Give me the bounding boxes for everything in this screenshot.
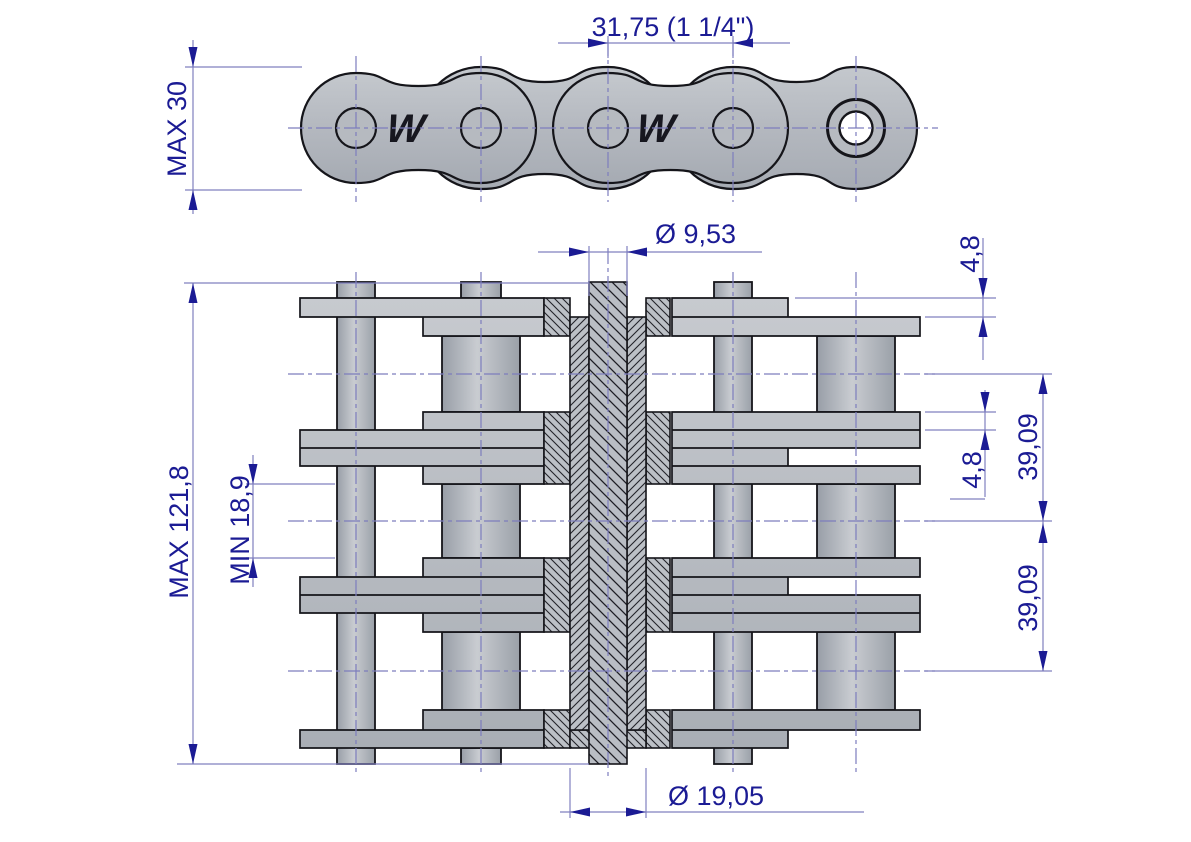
sectioned-parts [544, 282, 670, 764]
dim-inner-width-label: MIN 18,9 [225, 475, 255, 585]
dim-plate-thickness-inner-label: 4,8 [957, 451, 987, 489]
dim-roller-diameter: Ø 19,05 [560, 768, 864, 818]
arrowhead [570, 808, 590, 817]
sectioned-plate-block [544, 710, 570, 748]
arrowhead [1039, 501, 1048, 521]
arrowhead [1039, 651, 1048, 671]
chain-section-view [300, 282, 920, 764]
sectioned-plate-block [544, 412, 570, 484]
arrowhead [979, 278, 988, 298]
arrowhead [626, 808, 646, 817]
arrowhead [1039, 374, 1048, 394]
sectioned-plate-block [646, 558, 670, 632]
arrowhead [1039, 523, 1048, 543]
dim-pitch: 31,75 (1 1/4") [558, 12, 790, 58]
roller-chain-drawing: W W [0, 0, 1191, 842]
sectioned-plate-block [646, 298, 670, 336]
dim-plate-height-label: MAX 30 [162, 81, 192, 177]
sectioned-plate-block [646, 710, 670, 748]
arrowhead [981, 392, 990, 412]
dim-roller-diameter-label: Ø 19,05 [668, 781, 764, 811]
dim-plate-thickness-outer-label: 4,8 [955, 235, 985, 273]
dim-pitch-label: 31,75 (1 1/4") [592, 12, 755, 42]
dim-strand-spacing-bottom: 39,09 [925, 521, 1052, 671]
sectioned-plate-block [544, 558, 570, 632]
sectioned-plate-block [646, 412, 670, 484]
sectioned-bushing-wall [627, 317, 646, 730]
dim-overall-width-label: MAX 121,8 [164, 465, 194, 599]
dim-plate-height: MAX 30 [162, 40, 302, 214]
arrowhead [189, 283, 198, 303]
pin [714, 282, 752, 764]
arrowhead [189, 744, 198, 764]
sectioned-bushing-wall [570, 317, 589, 730]
arrowhead [189, 190, 198, 210]
pin [337, 282, 375, 764]
sectioned-plate-block [544, 298, 570, 336]
pins [337, 282, 752, 764]
dim-strand-spacing-top-label: 39,09 [1013, 413, 1043, 481]
dim-pin-diameter-label: Ø 9,53 [655, 219, 736, 249]
technical-drawing-page: W W [0, 0, 1191, 842]
arrowhead [981, 430, 990, 450]
arrowhead [189, 47, 198, 67]
arrowhead [979, 317, 988, 337]
arrowhead [627, 248, 647, 257]
dim-plate-thickness-inner: 4,8 [925, 390, 996, 499]
rollers [442, 336, 895, 710]
roller [442, 336, 520, 412]
dim-strand-spacing-bottom-label: 39,09 [1013, 564, 1043, 632]
arrowhead [569, 248, 589, 257]
